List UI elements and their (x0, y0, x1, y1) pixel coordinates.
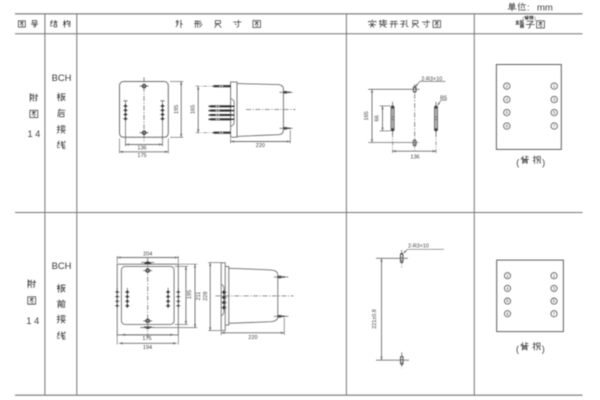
svg-text:4: 4 (506, 286, 509, 291)
svg-text:136: 136 (137, 146, 146, 152)
svg-text:7: 7 (553, 124, 556, 129)
svg-text:165: 165 (190, 105, 196, 114)
svg-text:8: 8 (506, 311, 509, 316)
svg-text:220: 220 (256, 143, 265, 149)
svg-text:228: 228 (203, 292, 209, 301)
svg-text:(: ( (523, 16, 525, 21)
svg-text:5: 5 (553, 110, 556, 115)
svg-text:7: 7 (553, 311, 556, 316)
svg-text:1 4: 1 4 (26, 316, 39, 326)
svg-text:6: 6 (506, 110, 509, 115)
svg-text:3: 3 (553, 97, 556, 102)
svg-text:1: 1 (553, 84, 556, 89)
svg-text:66: 66 (375, 115, 381, 121)
svg-text:): ) (534, 16, 536, 21)
svg-text:8: 8 (506, 124, 509, 129)
svg-text:195: 195 (174, 105, 180, 114)
svg-text:1 4: 1 4 (28, 129, 41, 139)
svg-text:1: 1 (553, 273, 556, 278)
svg-text:3: 3 (553, 286, 556, 291)
svg-text:2: 2 (506, 273, 509, 278)
svg-text:165: 165 (364, 111, 370, 120)
svg-text:(: ( (516, 344, 519, 354)
svg-text:194: 194 (143, 345, 152, 351)
svg-text:136: 136 (410, 154, 419, 160)
svg-text:175: 175 (137, 153, 146, 159)
svg-text:): ) (542, 344, 545, 354)
svg-text:BCH: BCH (52, 260, 72, 271)
svg-text:4: 4 (506, 97, 509, 102)
svg-text:220: 220 (248, 335, 257, 341)
svg-text:6: 6 (506, 299, 509, 304)
svg-text:mm: mm (537, 2, 553, 13)
svg-text:2: 2 (506, 84, 509, 89)
svg-text:): ) (542, 157, 545, 167)
svg-text:204: 204 (143, 251, 152, 257)
svg-text:5: 5 (553, 299, 556, 304)
svg-text:175: 175 (142, 336, 151, 342)
svg-text::: : (527, 2, 530, 12)
svg-text:(: ( (516, 157, 519, 167)
svg-text:BCH: BCH (52, 72, 72, 83)
svg-text:2-R3×10: 2-R3×10 (408, 244, 429, 250)
svg-text:221±0.8: 221±0.8 (372, 309, 378, 328)
svg-text:211: 211 (196, 292, 202, 301)
svg-text:195: 195 (187, 290, 193, 299)
